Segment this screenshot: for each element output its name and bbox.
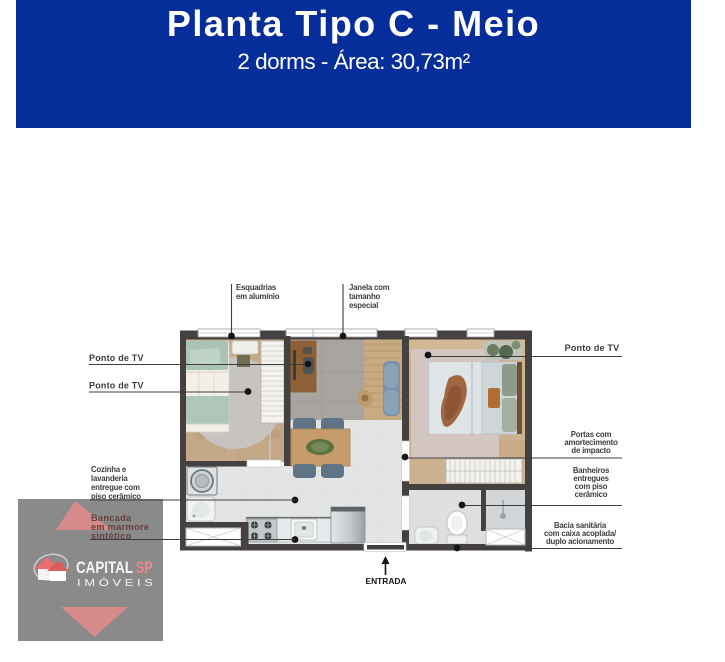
svg-text:especial: especial [349, 301, 378, 310]
svg-text:I M Ó V E I S: I M Ó V E I S [77, 576, 153, 589]
svg-text:Ponto de TV: Ponto de TV [89, 353, 144, 363]
svg-text:CAPITAL: CAPITAL [76, 559, 133, 577]
svg-text:Cozinha e: Cozinha e [91, 465, 127, 474]
svg-text:entregue com: entregue com [91, 483, 140, 492]
svg-text:em alumínio: em alumínio [236, 292, 280, 301]
svg-text:tamanho: tamanho [349, 292, 381, 301]
svg-text:de impacto: de impacto [571, 446, 611, 455]
svg-text:Janela com: Janela com [349, 283, 390, 292]
svg-text:Ponto de TV: Ponto de TV [565, 343, 620, 353]
svg-text:duplo acionamento: duplo acionamento [546, 537, 615, 546]
svg-text:Esquadrias: Esquadrias [236, 283, 277, 292]
svg-text:SP: SP [136, 559, 153, 577]
svg-text:cerâmico: cerâmico [575, 490, 608, 499]
svg-text:lavanderia: lavanderia [91, 474, 128, 483]
svg-text:Ponto de TV: Ponto de TV [89, 381, 144, 391]
svg-text:ENTRADA: ENTRADA [366, 576, 407, 586]
